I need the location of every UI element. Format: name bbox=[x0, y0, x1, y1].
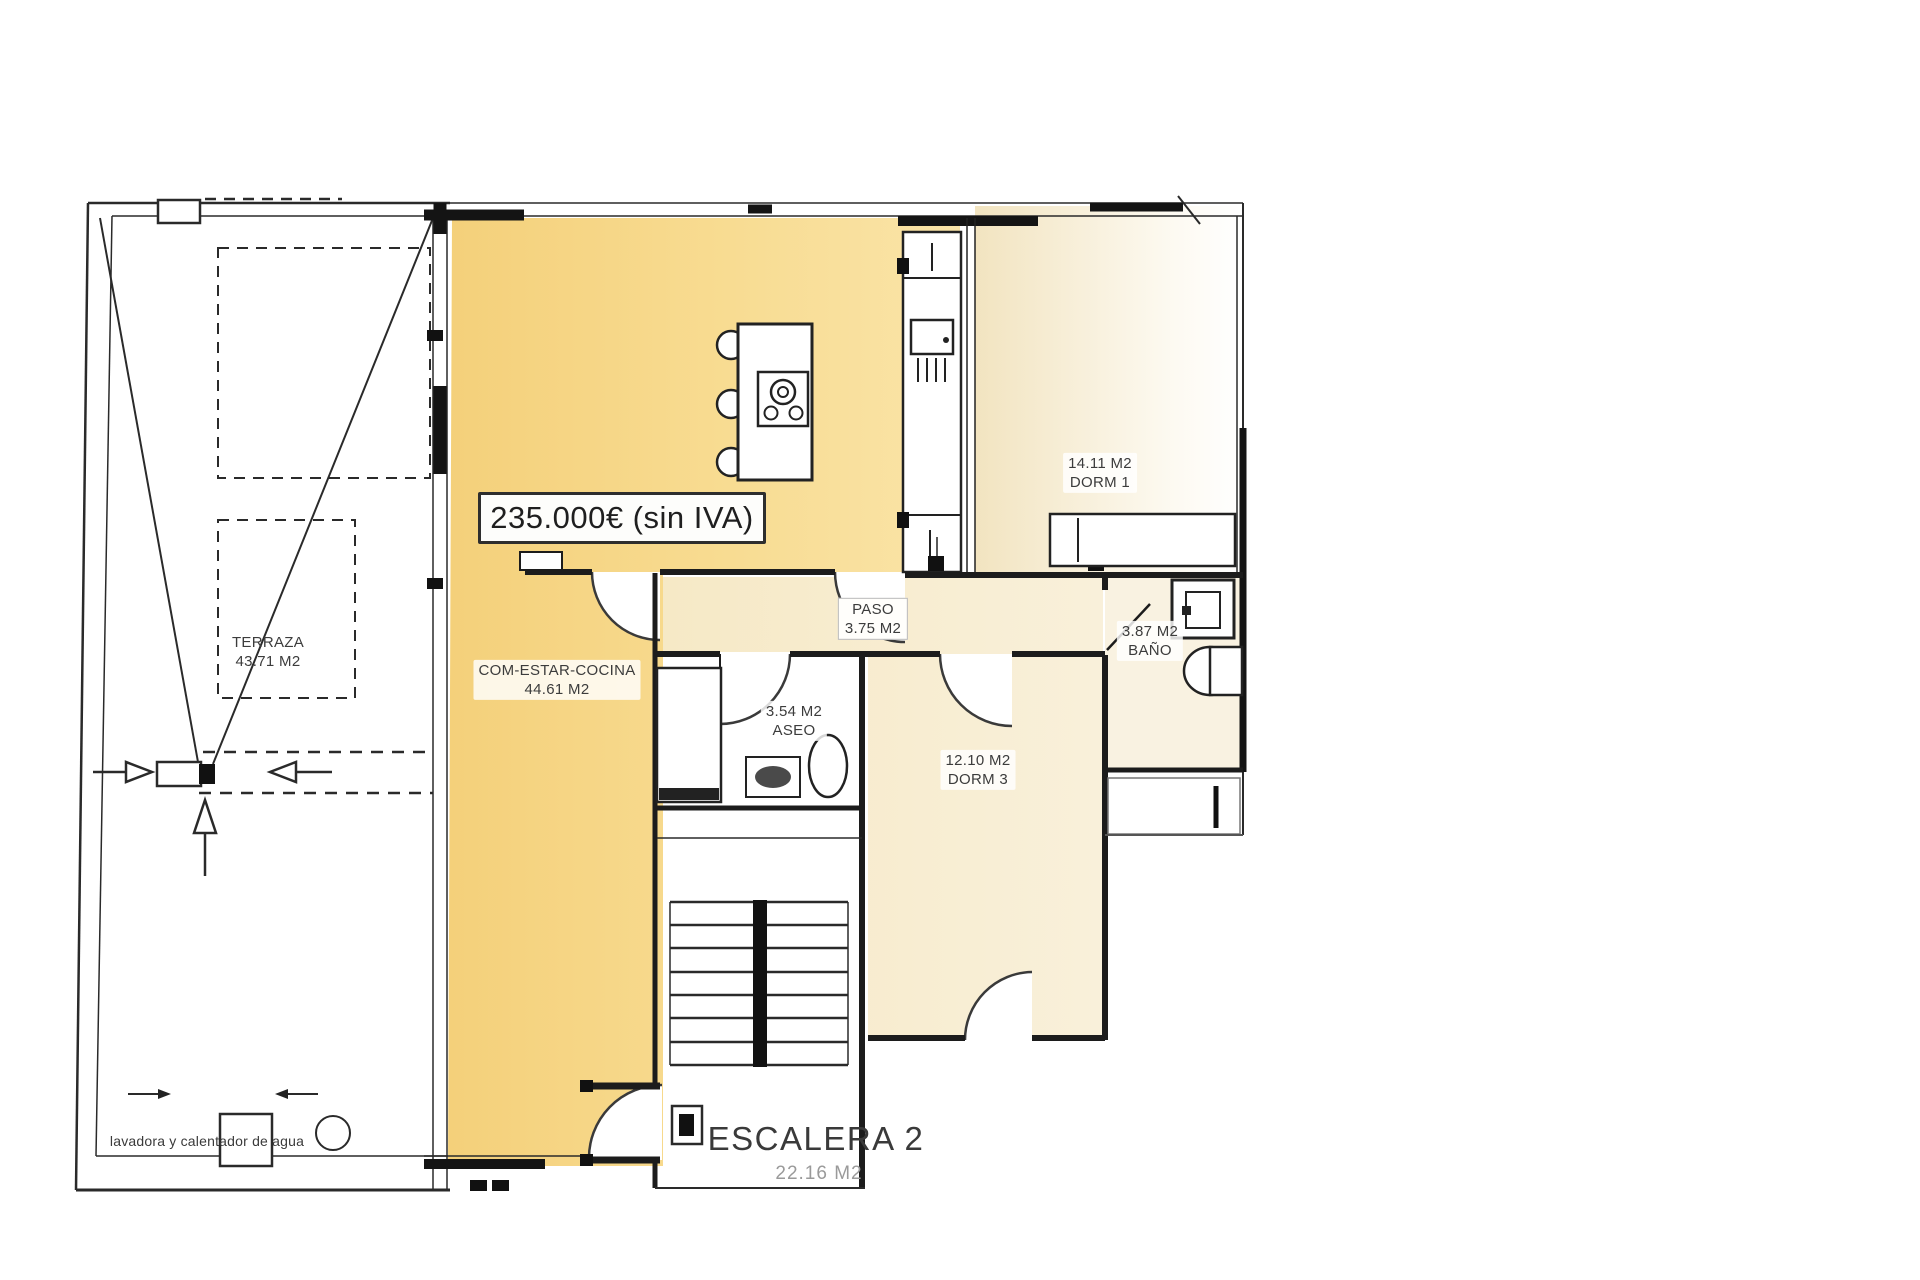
room-label-bano: 3.87 M2 BAÑO bbox=[1117, 621, 1183, 661]
room-area: 14.11 M2 bbox=[1068, 454, 1132, 473]
room-label-dorm3: 12.10 M2 DORM 3 bbox=[941, 750, 1016, 790]
room-name: PASO bbox=[845, 600, 901, 619]
living-left-wall bbox=[427, 203, 447, 1190]
room-area: 43.71 M2 bbox=[232, 652, 304, 671]
kitchen-island bbox=[717, 324, 812, 480]
room-area: 3.54 M2 bbox=[766, 702, 822, 721]
laundry-note: lavadora y calentador de agua bbox=[110, 1133, 304, 1151]
room-name: ASEO bbox=[766, 721, 822, 740]
price-tag: 235.000€ (sin IVA) bbox=[478, 492, 766, 544]
room-label-aseo: 3.54 M2 ASEO bbox=[761, 701, 827, 741]
room-name: COM-ESTAR-COCINA bbox=[478, 661, 635, 680]
room-area: 44.61 M2 bbox=[478, 680, 635, 699]
room-name: DORM 1 bbox=[1068, 473, 1132, 492]
room-area: 3.87 M2 bbox=[1122, 622, 1178, 641]
room-label-dorm1: 14.11 M2 DORM 1 bbox=[1063, 453, 1137, 493]
kitchen-counter bbox=[897, 218, 975, 573]
room-area: 12.10 M2 bbox=[946, 751, 1011, 770]
room-label-escalera: ESCALERA 2 bbox=[708, 1118, 925, 1160]
room-label-paso: PASO 3.75 M2 bbox=[838, 598, 908, 640]
room-label-terraza: TERRAZA 43.71 M2 bbox=[232, 633, 304, 671]
room-name: TERRAZA bbox=[232, 633, 304, 652]
room-area-escalera: 22.16 M2 bbox=[775, 1162, 862, 1186]
room-name: BAÑO bbox=[1122, 641, 1178, 660]
room-label-living-kitchen: COM-ESTAR-COCINA 44.61 M2 bbox=[473, 660, 640, 700]
dorm1-furniture bbox=[1050, 514, 1235, 566]
room-name: DORM 3 bbox=[946, 770, 1011, 789]
room-area: 3.75 M2 bbox=[845, 619, 901, 638]
floor-plan-page: 235.000€ (sin IVA) TERRAZA 43.71 M2 COM-… bbox=[0, 0, 1920, 1280]
terraza-area bbox=[76, 199, 450, 1190]
